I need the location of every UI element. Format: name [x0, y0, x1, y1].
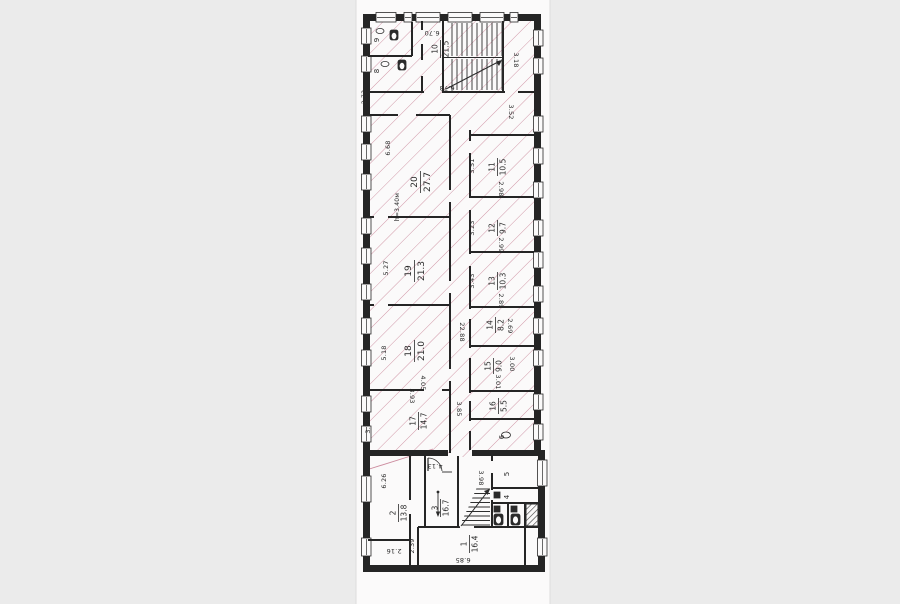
- sink-room-9: [376, 28, 384, 33]
- dim-4-05: 4.05: [419, 375, 427, 390]
- dim-h-3-40: h=3.40м: [394, 193, 401, 221]
- dim-2-39: 2.39: [408, 538, 416, 553]
- room-4-label: 4: [503, 494, 511, 499]
- dim-3-52: 3.52: [507, 104, 515, 119]
- room-15-area: 9.0: [495, 360, 504, 372]
- room-8-label: 8: [373, 69, 381, 73]
- dim-2-89: 2.89: [497, 293, 505, 308]
- dim-2-69: 2.69: [506, 318, 514, 333]
- room-20-area: 27.7: [423, 172, 433, 192]
- dim-6-68: 6.68: [384, 140, 392, 155]
- room-6-label: 6: [498, 434, 506, 439]
- room-20-number: 20: [410, 176, 420, 188]
- room-1-area: 16.4: [471, 535, 480, 552]
- room-13-number: 13: [488, 276, 497, 286]
- dim-3-51: 3.51: [468, 158, 476, 173]
- dim-6-78: 6.78: [439, 84, 454, 92]
- dim-3-00: 3.00: [508, 356, 516, 371]
- dim-2-73: 2.73: [361, 90, 368, 104]
- room-18-area: 21.0: [417, 341, 427, 361]
- dim-2-98: 2.98: [497, 181, 505, 196]
- room-2-area: 13.8: [400, 504, 409, 521]
- room-3-number: 3: [431, 505, 440, 510]
- dim-3-73: 3.73: [364, 418, 372, 433]
- room-17-number: 17: [409, 416, 418, 426]
- room-17-area: 14.7: [420, 412, 429, 429]
- dim-3-98: 3.98: [477, 470, 485, 485]
- room-10-number: 10: [431, 44, 440, 54]
- dim-3-85: 3.85: [455, 401, 463, 416]
- room-16-area: 5.5: [500, 400, 509, 412]
- room-14-area: 8.2: [497, 319, 506, 331]
- room-9-label: 9: [373, 38, 381, 42]
- room-18-number: 18: [404, 345, 414, 357]
- room-12-area: 9.7: [499, 222, 508, 234]
- dim-3-43: 3.43: [468, 273, 476, 288]
- room-14-number: 14: [486, 320, 495, 330]
- dim-3-18: 3.18: [512, 52, 520, 67]
- dim-2-16: 2.16: [386, 547, 401, 555]
- room-10-area: 21.5: [442, 40, 451, 57]
- dim-3-23: 3.23: [468, 220, 476, 235]
- dim-3-93: 3.93: [408, 388, 416, 403]
- dim-2-99: 2.99: [497, 237, 505, 252]
- room-3-area: 16.7: [442, 499, 451, 516]
- cistern-wc-right: [511, 506, 517, 512]
- sink-room-8: [381, 61, 389, 66]
- room-11-number: 11: [488, 162, 497, 172]
- dim-6-85: 6.85: [455, 556, 470, 564]
- room-11-area: 10.5: [499, 158, 508, 175]
- dim-5-27: 5.27: [382, 260, 390, 275]
- duct-shaft: [526, 504, 538, 526]
- cistern-wc-left: [494, 506, 500, 512]
- room-13-area: 10.3: [499, 272, 508, 289]
- dim-22-88: 22.88: [458, 322, 466, 342]
- room-12-number: 12: [488, 223, 497, 233]
- dim-5-18: 5.18: [380, 345, 388, 360]
- dim-3-01: 3.01: [494, 374, 502, 389]
- room-15-number: 15: [484, 361, 493, 371]
- room-2-number: 2: [389, 510, 398, 515]
- room-19-area: 21.3: [417, 261, 427, 281]
- dim-4-13: 4.13: [427, 462, 442, 470]
- dim-6-70: 6.70: [424, 29, 439, 37]
- room-1-number: 1: [460, 541, 469, 546]
- dim-6-26: 6.26: [380, 473, 388, 488]
- scanned-floorplan-page: 9 8 10 21.5 20 27.7 19 21.3 18 21.0 17 1…: [0, 0, 900, 604]
- room-16-number: 16: [489, 401, 498, 411]
- room-5-label: 5: [503, 472, 511, 476]
- sink-room-4: [494, 492, 500, 498]
- room-19-number: 19: [404, 265, 414, 277]
- floor-plan-svg: 9 8 10 21.5 20 27.7 19 21.3 18 21.0 17 1…: [0, 0, 900, 604]
